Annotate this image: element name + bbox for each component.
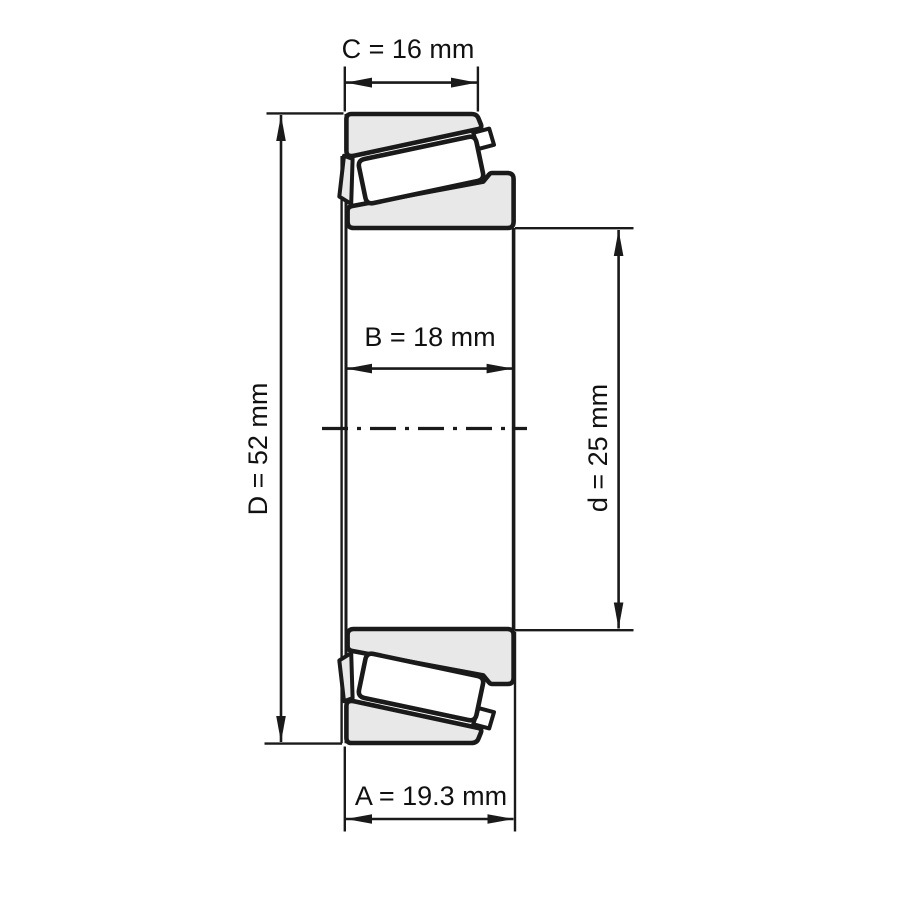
dim-d-arrow-down-icon [614, 603, 624, 629]
dimension-d: d = 25 mm [515, 228, 634, 630]
bearing-half-top [339, 114, 513, 228]
dim-B-label: B = 18 mm [364, 322, 495, 352]
dim-d-label: d = 25 mm [583, 384, 613, 512]
dim-d-arrow-up-icon [614, 230, 624, 256]
bearing-dimension-diagram: C = 16 mm D = 52 mm B = 18 mm d = 25 mm … [0, 0, 900, 900]
dim-A-arrow-left-icon [346, 814, 372, 824]
dim-B-arrow-left-icon [346, 364, 372, 374]
cage-small-end-tab [339, 156, 352, 204]
diagram-canvas: C = 16 mm D = 52 mm B = 18 mm d = 25 mm … [0, 0, 900, 900]
dim-A-label: A = 19.3 mm [355, 781, 507, 811]
dim-D-arrow-down-icon [276, 716, 286, 742]
dim-C-arrow-right-icon [451, 78, 477, 88]
dim-D-arrow-up-icon [276, 115, 286, 141]
bearing-half-bottom [339, 629, 513, 743]
dim-D-label: D = 52 mm [243, 383, 273, 516]
dimension-C: C = 16 mm [342, 34, 478, 112]
dimension-B: B = 18 mm [346, 322, 513, 373]
dim-C-arrow-left-icon [346, 78, 372, 88]
dim-A-arrow-right-icon [488, 814, 514, 824]
dim-C-label: C = 16 mm [342, 34, 475, 64]
dim-B-arrow-right-icon [487, 364, 513, 374]
